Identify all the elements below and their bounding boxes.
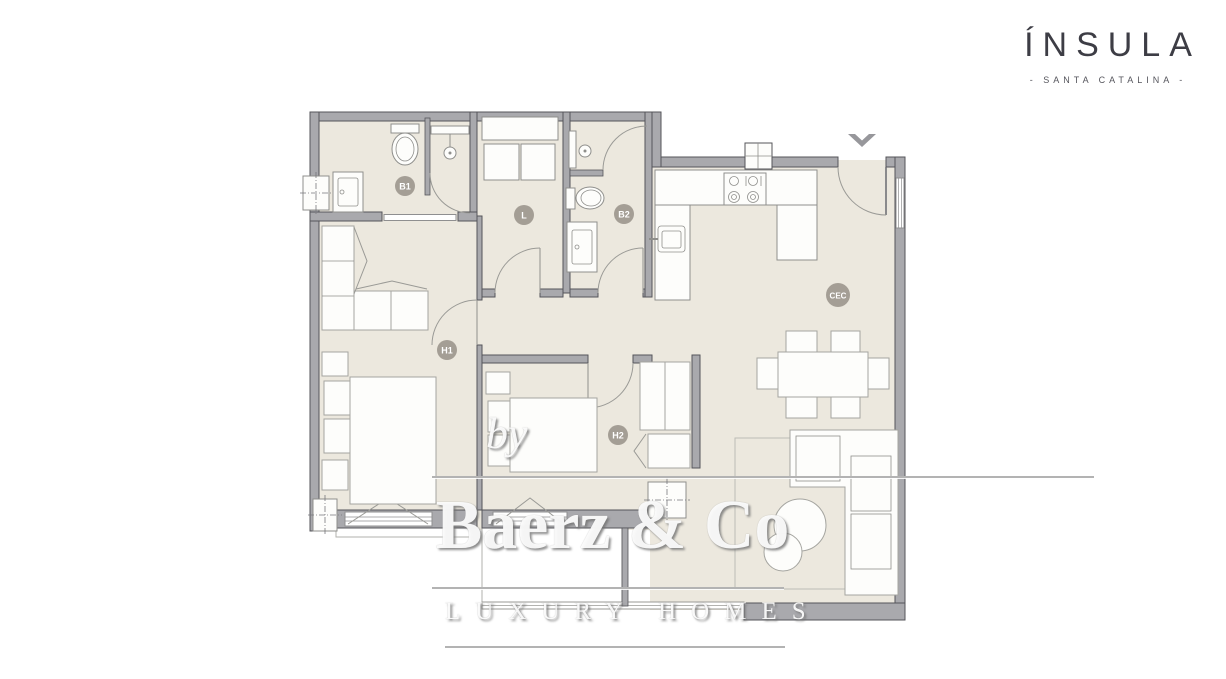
brand-logo: ÍNSULA - SANTA CATALINA -	[1008, 26, 1208, 85]
brand-name: ÍNSULA	[1008, 26, 1208, 65]
svg-text:CEC: CEC	[830, 292, 847, 301]
svg-text:L: L	[521, 211, 527, 221]
room-label-h2: H2	[608, 425, 628, 445]
watermark-rule-top	[432, 476, 1094, 478]
svg-text:H1: H1	[441, 346, 453, 356]
entrance-arrow-icon	[848, 134, 876, 147]
room-label-b2: B2	[614, 204, 634, 224]
svg-text:H2: H2	[612, 431, 624, 441]
svg-text:B1: B1	[399, 182, 411, 192]
svg-text:B2: B2	[618, 210, 630, 220]
room-label-b1: B1	[395, 176, 415, 196]
floor-plan: B1 L B2 H1 H2 CEC	[300, 100, 920, 640]
room-label-h1: H1	[437, 340, 457, 360]
watermark-rule-bottom	[445, 646, 785, 648]
room-label-l: L	[514, 205, 534, 225]
brand-tagline: - SANTA CATALINA -	[1008, 75, 1208, 85]
watermark-rule-middle	[432, 587, 784, 589]
room-label-cec: CEC	[826, 283, 850, 307]
